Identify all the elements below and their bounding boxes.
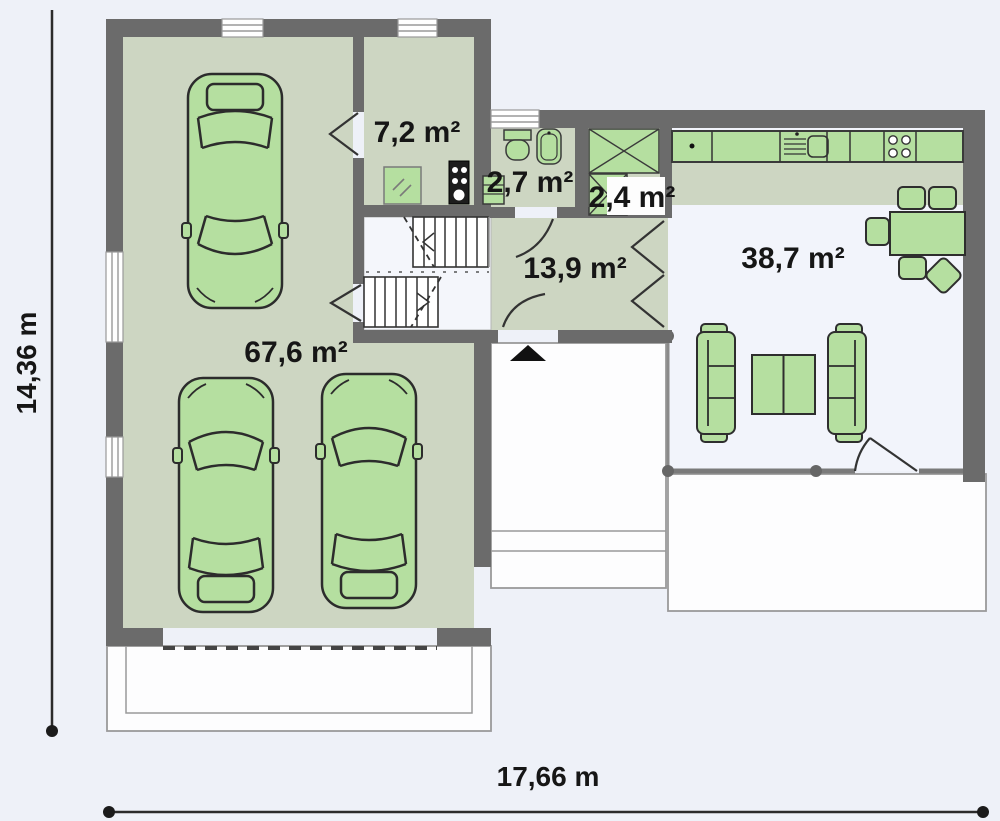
boiler-icon <box>449 161 469 204</box>
driveway <box>107 646 491 731</box>
post <box>810 465 822 477</box>
toilet-icon <box>504 130 531 160</box>
living-area-label: 38,7 m² <box>741 242 844 275</box>
sofa-icon <box>697 324 735 442</box>
car-icon <box>316 374 422 608</box>
chair-icon <box>929 187 956 209</box>
hall-area-label: 13,9 m² <box>523 252 626 285</box>
washing-machine-icon <box>384 167 421 204</box>
window <box>106 437 123 477</box>
window <box>398 19 437 37</box>
terrace <box>668 474 986 611</box>
wardrobe-area-label: 2,4 m² <box>589 181 676 214</box>
dining-table-icon <box>890 212 965 255</box>
floor-plan-svg: 67,6 m² 7,2 m² 2,7 m² 2,4 m² 13,9 m² 38,… <box>0 0 1000 821</box>
window <box>491 110 539 128</box>
car-icon <box>182 74 288 308</box>
kitchen-counter <box>672 131 963 162</box>
post <box>662 465 674 477</box>
chair-icon <box>898 187 925 209</box>
utility-area-label: 7,2 m² <box>374 116 461 149</box>
wc-area-label: 2,7 m² <box>487 166 574 199</box>
entrance-porch <box>491 343 666 588</box>
window <box>222 19 263 37</box>
window <box>106 252 123 342</box>
garage-area-label: 67,6 m² <box>244 336 347 369</box>
height-dimension-label: 14,36 m <box>11 312 42 415</box>
sofa-icon <box>828 324 866 442</box>
chair-icon <box>899 257 926 279</box>
floor-plan: 67,6 m² 7,2 m² 2,7 m² 2,4 m² 13,9 m² 38,… <box>0 0 1000 821</box>
car-icon <box>173 378 279 612</box>
chair-icon <box>866 218 889 245</box>
coffee-table-icon <box>752 355 815 414</box>
washbasin-icon <box>537 129 561 164</box>
width-dimension-label: 17,66 m <box>497 761 600 792</box>
